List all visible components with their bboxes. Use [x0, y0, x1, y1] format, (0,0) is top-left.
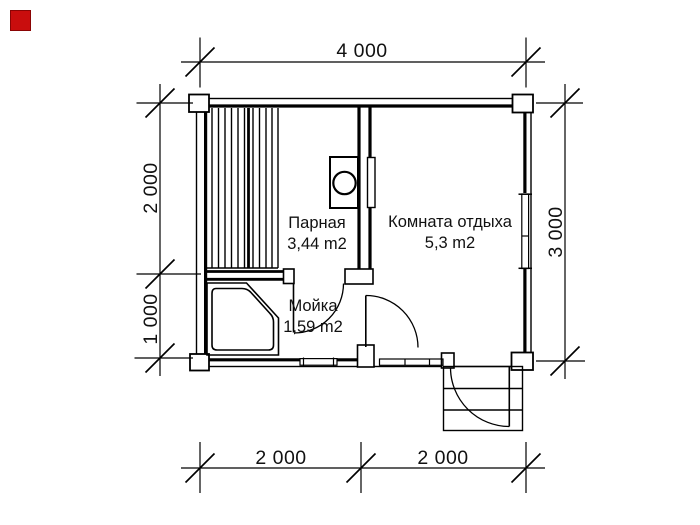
rest-room-name: Комната отдыха: [365, 212, 535, 233]
wash-room-name: Мойка: [243, 296, 383, 317]
rest-room-label: Комната отдыха 5,3 m2: [365, 212, 535, 253]
entrance-door: [451, 367, 510, 427]
dimension-label-bottom-right: 2 000: [383, 447, 503, 469]
floor-plan-drawing: [0, 0, 700, 525]
floor-plan-page: Парная 3,44 m2 Комната отдыха 5,3 m2 Мой…: [0, 0, 700, 525]
stove-icon: [330, 157, 375, 208]
dimension-label-top: 4 000: [302, 40, 422, 62]
window-bottom-washroom: [300, 358, 337, 367]
window-bottom-restroom: [380, 359, 444, 365]
wash-room-label: Мойка 1,59 m2: [243, 296, 383, 337]
dimension-label-right: 3 000: [545, 182, 567, 282]
dimension-label-left-upper: 2 000: [140, 138, 162, 238]
rest-room-area: 5,3 m2: [365, 233, 535, 254]
wash-room-area: 1,59 m2: [243, 317, 383, 338]
dimension-label-left-lower: 1 000: [140, 269, 162, 369]
dimension-label-bottom-left: 2 000: [221, 447, 341, 469]
